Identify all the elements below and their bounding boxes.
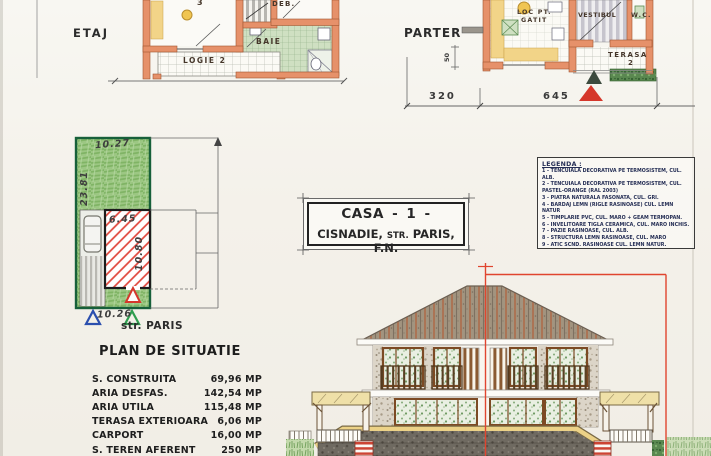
street-label: str. PARIS — [121, 320, 183, 332]
room-label-baie: BAIE — [256, 37, 281, 46]
situation-table: S. CONSTRUITA 69,96 MP ARIA DESFAS. 142,… — [92, 372, 262, 456]
car-icon — [84, 216, 101, 252]
row-value: 115,48 MP — [204, 402, 262, 413]
table-row: S. TEREN AFERENT 250 MP — [92, 443, 262, 456]
title-block: CASA - 1 - CISNADIE, STR. PARIS, F.N. — [303, 198, 469, 250]
etaj-floor-plan — [37, 0, 347, 84]
row-label: TERASA EXTERIOARA — [92, 416, 208, 427]
legend-item: 1 - TENCUIALA DECORATIVA PE TERMOSISTEM,… — [542, 169, 690, 182]
legend-item: 9 - ATIC SCND. RASINOASE CUL. LEMN NATUR… — [542, 243, 690, 249]
stairs-right — [594, 441, 611, 456]
row-value: 142,54 MP — [204, 388, 262, 399]
project-title: CASA - 1 - — [304, 206, 468, 222]
legend-item: 8 - STRUCTURA LEMN RASINOASE, CUL. MARO — [542, 236, 690, 243]
stairs-left — [355, 441, 373, 456]
legend-item: 3 - PIATRA NATURALA FASONATA, CUL. GRI. — [542, 196, 690, 203]
legend-item: 5 - TIMPLARIE PVC, CUL. MARO + GEAM TERM… — [542, 216, 690, 223]
row-value: 6,06 MP — [217, 416, 262, 427]
dim-645: 645 — [543, 91, 570, 102]
room-label-logie: LOGIE 2 — [183, 56, 226, 65]
site-dim-left: 23.81 — [79, 171, 90, 206]
room-label-3: 3 — [197, 0, 204, 7]
site-dim-building-width: 6.45 — [109, 213, 137, 225]
entrance-marker-red-icon — [579, 85, 603, 101]
legend-box: LEGENDA : 1 - TENCUIALA DECORATIVA PE TE… — [537, 157, 695, 249]
site-dim-building-depth: 10.80 — [134, 236, 145, 271]
row-label: ARIA UTILA — [92, 402, 154, 413]
project-city: CISNADIE, — [317, 227, 383, 241]
site-dim-bottom: 10.26 — [97, 308, 132, 320]
pergola-right — [600, 392, 659, 442]
site-plan-drawing — [76, 137, 222, 324]
scan-edge-shadow — [0, 0, 3, 456]
row-label: ARIA DESFAS. — [92, 388, 168, 399]
room-label-gatit: GATIT — [521, 17, 548, 24]
project-address: CISNADIE, STR. PARIS, F.N. — [304, 227, 468, 255]
room-label-wc: W.C. — [631, 12, 652, 19]
room-label-deb: DEB. — [272, 0, 295, 8]
table-row: S. CONSTRUITA 69,96 MP — [92, 372, 262, 386]
room-label-loc-pt: LOC PT. — [517, 9, 552, 16]
row-value: 250 MP — [221, 445, 262, 456]
row-label: S. TEREN AFERENT — [92, 445, 196, 456]
situation-plan-title: PLAN DE SITUATIE — [99, 344, 241, 359]
room-label-vestibul: VESTIBUL — [578, 12, 616, 19]
table-row: ARIA UTILA 115,48 MP — [92, 400, 262, 414]
table-row: ARIA DESFAS. 142,54 MP — [92, 386, 262, 400]
elevation-drawing — [286, 263, 711, 456]
table-row: CARPORT 16,00 MP — [92, 429, 262, 443]
etaj-plan-title: ETAJ — [73, 26, 109, 40]
room-label-terasa: TERASA — [608, 51, 648, 59]
dim-320: 320 — [429, 91, 456, 102]
row-value: 16,00 MP — [211, 430, 262, 441]
street-abbr: STR. — [387, 231, 409, 241]
table-row: TERASA EXTERIOARA 6,06 MP — [92, 415, 262, 429]
entrance-marker-icon — [586, 70, 602, 84]
scanned-architectural-sheet: ETAJ PARTER 3 DEB. BAIE LOGIE 2 LOC PT. … — [0, 0, 711, 456]
row-label: S. CONSTRUITA — [92, 374, 176, 385]
legend-title: LEGENDA : — [542, 161, 690, 168]
dim-50: 50 — [443, 53, 451, 62]
row-value: 69,96 MP — [211, 374, 262, 385]
row-label: CARPORT — [92, 430, 143, 441]
room-label-terasa-no: 2 — [628, 59, 634, 67]
legend-item: 4 - BARDAJ LEMN (RIGLE RASINOASE) CUL. L… — [542, 203, 690, 216]
parter-plan-title: PARTER — [404, 26, 461, 40]
legend-item: 2 - TENCUIALA DECORATIVA PE TERMOSISTEM,… — [542, 182, 690, 195]
